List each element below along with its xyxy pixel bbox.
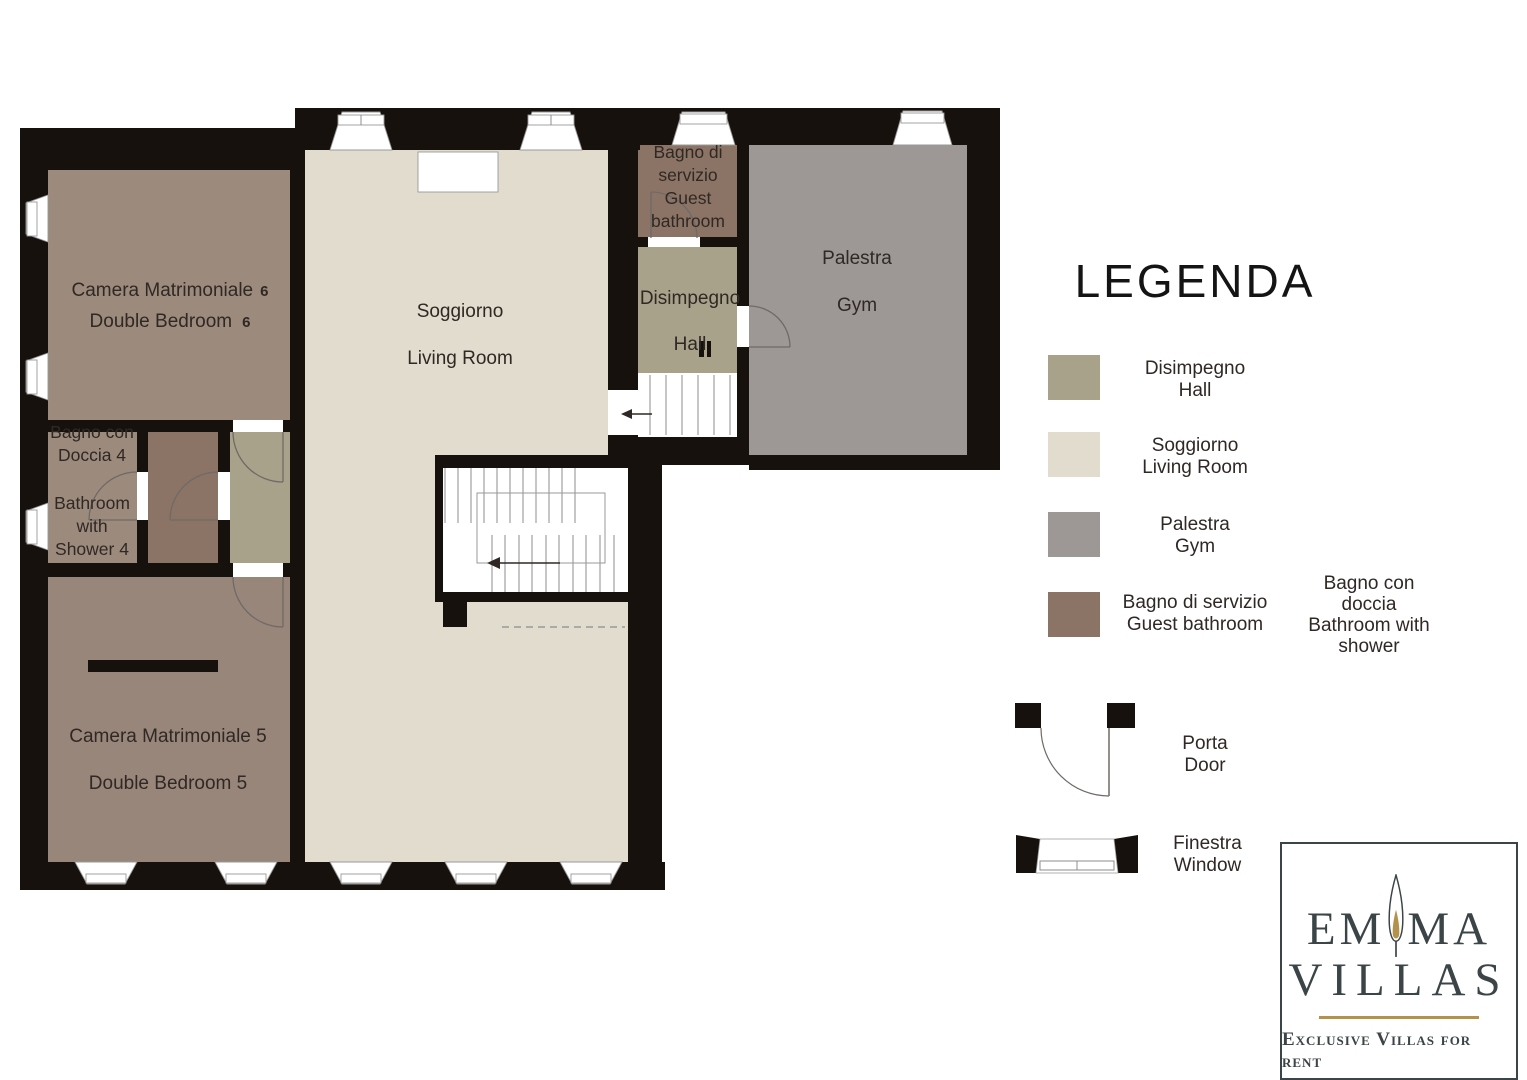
cypress-tree-icon bbox=[1386, 874, 1406, 958]
label-bathroom4-3: Bathroom bbox=[54, 493, 130, 513]
label-bathroom4-5: Shower 4 bbox=[55, 539, 129, 559]
room-small-wc bbox=[148, 432, 218, 563]
legend-shower-1: Bagno con bbox=[1295, 573, 1443, 594]
legend-label-living: Soggiorno Living Room bbox=[1100, 435, 1290, 479]
window-top-gym bbox=[893, 111, 952, 145]
legend-swatch-gym bbox=[1048, 512, 1100, 557]
legend-living-en: Living Room bbox=[1100, 457, 1290, 479]
logo-word-villas: VILLAS bbox=[1288, 957, 1509, 1004]
room-hall-strip bbox=[230, 432, 290, 563]
window-top-living-2 bbox=[520, 112, 582, 150]
living-room-niche bbox=[418, 152, 498, 192]
label-gym-en: Gym bbox=[837, 295, 877, 316]
label-bathroom4-2: Doccia 4 bbox=[58, 445, 126, 465]
legend-label-bathroom-shower: Bagno con doccia Bathroom with shower bbox=[1295, 573, 1443, 657]
legend-label-hall: Disimpegno Hall bbox=[1100, 358, 1290, 402]
legend-swatch-living bbox=[1048, 432, 1100, 477]
legend-label-guest-bathroom: Bagno di servizio Guest bathroom bbox=[1100, 592, 1290, 636]
label-living-en: Living Room bbox=[407, 348, 513, 369]
legend-swatch-guest-bathroom bbox=[1048, 592, 1100, 637]
legend-hall-it: Disimpegno bbox=[1100, 358, 1290, 380]
legend-window-en: Window bbox=[1150, 855, 1265, 877]
label-bathroom4-1: Bagno con bbox=[50, 422, 134, 442]
legend-guest-bathroom-it: Bagno di servizio bbox=[1100, 592, 1290, 614]
legend-gym-it: Palestra bbox=[1100, 514, 1290, 536]
label-gym-it: Palestra bbox=[822, 248, 892, 269]
label-bathroom4-4: with bbox=[75, 516, 107, 536]
door-symbol-icon bbox=[1015, 698, 1140, 803]
label-guest-bath-1: Bagno di bbox=[653, 142, 722, 162]
label-hall-en: Hall bbox=[674, 334, 707, 355]
legend-shower-3: Bathroom with bbox=[1295, 615, 1443, 636]
legend-guest-bathroom-en: Guest bathroom bbox=[1100, 614, 1290, 636]
logo-em: EM bbox=[1307, 906, 1386, 953]
legend-label-window: Finestra Window bbox=[1150, 833, 1265, 877]
legend-door-en: Door bbox=[1150, 755, 1260, 777]
hall-stairwell bbox=[638, 373, 737, 437]
window-left-bedroom6-2 bbox=[26, 353, 48, 400]
logo-word-emma: EM MA bbox=[1307, 874, 1491, 953]
label-bedroom6-en: Double Bedroom6 bbox=[90, 311, 251, 332]
label-bedroom5-it: Camera Matrimoniale 5 bbox=[69, 726, 266, 747]
legend-shower-4: shower bbox=[1295, 636, 1443, 657]
logo-gold-divider bbox=[1319, 1016, 1479, 1019]
bedroom5-closet-bar bbox=[88, 660, 218, 672]
logo-tagline: Exclusive Villas for rent bbox=[1282, 1029, 1516, 1073]
window-top-living-1 bbox=[330, 112, 392, 150]
legend-title: LEGENDA bbox=[1060, 254, 1330, 308]
label-living-it: Soggiorno bbox=[417, 301, 504, 322]
emma-villas-logo: EM MA VILLAS Exclusive Villas for rent bbox=[1280, 842, 1518, 1080]
legend-living-it: Soggiorno bbox=[1100, 435, 1290, 457]
legend-label-gym: Palestra Gym bbox=[1100, 514, 1290, 558]
hall-door-mark-2 bbox=[707, 341, 711, 357]
window-left-bedroom6-1 bbox=[26, 195, 48, 242]
floor-plan-page: Camera Matrimoniale6 Double Bedroom6 Sog… bbox=[0, 0, 1527, 1080]
legend-window-it: Finestra bbox=[1150, 833, 1265, 855]
legend-shower-2: doccia bbox=[1295, 594, 1443, 615]
legend-gym-en: Gym bbox=[1100, 536, 1290, 558]
window-top-guest-bathroom bbox=[672, 112, 735, 145]
stair-wall-opening bbox=[608, 390, 638, 435]
window-left-bathroom4 bbox=[26, 503, 48, 550]
window-symbol-icon bbox=[1016, 833, 1138, 877]
label-hall-it: Disimpegno bbox=[640, 288, 740, 309]
logo-ma: MA bbox=[1407, 906, 1491, 953]
legend-hall-en: Hall bbox=[1100, 380, 1290, 402]
legend-label-door: Porta Door bbox=[1150, 733, 1260, 777]
label-bedroom5-en: Double Bedroom 5 bbox=[89, 773, 247, 794]
legend-door-it: Porta bbox=[1150, 733, 1260, 755]
label-guest-bath-2: servizio bbox=[658, 165, 717, 185]
label-guest-bath-4: bathroom bbox=[651, 211, 725, 231]
room-double-bedroom-5 bbox=[48, 577, 290, 862]
legend-swatch-hall bbox=[1048, 355, 1100, 400]
label-bedroom6-it: Camera Matrimoniale6 bbox=[72, 280, 269, 301]
label-guest-bath-3: Guest bbox=[665, 188, 712, 208]
